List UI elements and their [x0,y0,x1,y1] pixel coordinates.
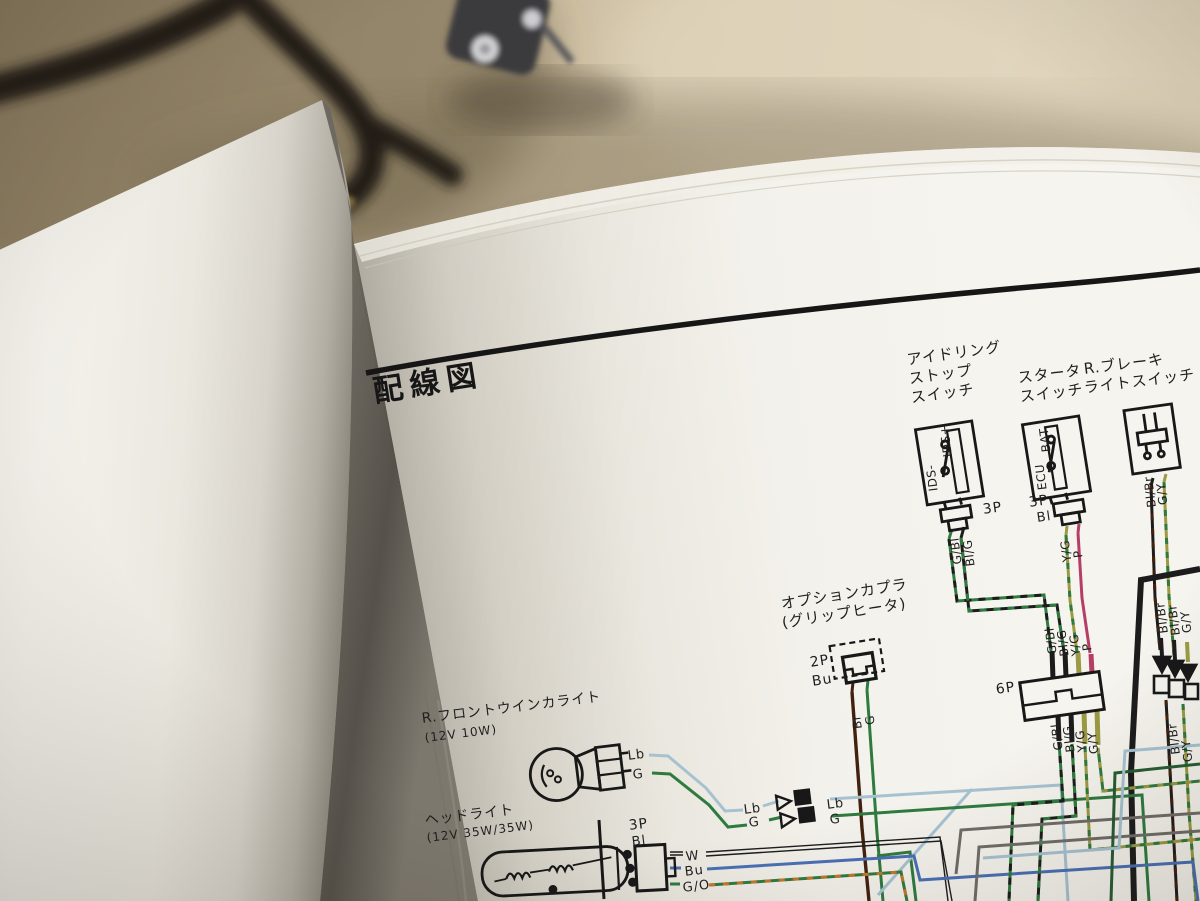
wire-stub [867,680,868,690]
wire-stub [1161,638,1162,656]
wire-label-blg: Bl/G [961,539,976,567]
wire-stub [1164,474,1166,482]
wire-label-gy: G/Y [1086,731,1101,754]
connector-color-bl: Bl [1036,510,1052,526]
wire-label-gy: G/Y [1155,482,1170,505]
connector-color-bu: Bu [811,672,834,690]
six-p-top-stub [1078,653,1079,675]
connector-color-bl: Bl [631,834,647,849]
wire-label-gy: G/Y [1179,610,1194,633]
wire-label-lb: Lb [826,797,845,813]
left-page [0,100,352,901]
wire-label-p: P [1072,549,1085,558]
wire-label-g: G [863,714,876,725]
terminal-label-ids-plus: IDS+ [938,424,954,458]
connector-label-3p: 3P [628,817,649,834]
connector-label-6p: 6P [995,680,1016,697]
wire-label-gy: G/Y [1180,739,1195,762]
wire-label-bu: Bu [684,864,705,880]
wire-stub [1066,526,1067,535]
six-p-top-stub [1091,654,1092,673]
wire-label-p: P [1081,642,1094,651]
wire-stub [1174,640,1175,660]
connector-label-2p: 2P [809,653,830,671]
terminal-label-ids-minus: IDS- [924,464,939,492]
photo-of-open-manual: 配線図 アイドリング ストップ スイッチ スタータ スイッチ R.ブレーキ ライ… [0,0,1200,901]
terminal-label-bat: BAT [1038,427,1053,453]
wire-stub [1078,524,1079,533]
book [0,0,1200,901]
wire-label-g: G [632,768,645,783]
connector-label-3p: 3P [982,500,1003,517]
wire-label-lb: Lb [627,748,646,764]
terminal-label-ecu: ECU [1033,463,1048,491]
wire-label-g: G [748,816,761,831]
wire-label-g: G [829,813,842,828]
connector-label-3p: 3P [1028,493,1049,510]
wire-stub [1187,642,1188,662]
wire-label-go: G/O [682,879,711,896]
